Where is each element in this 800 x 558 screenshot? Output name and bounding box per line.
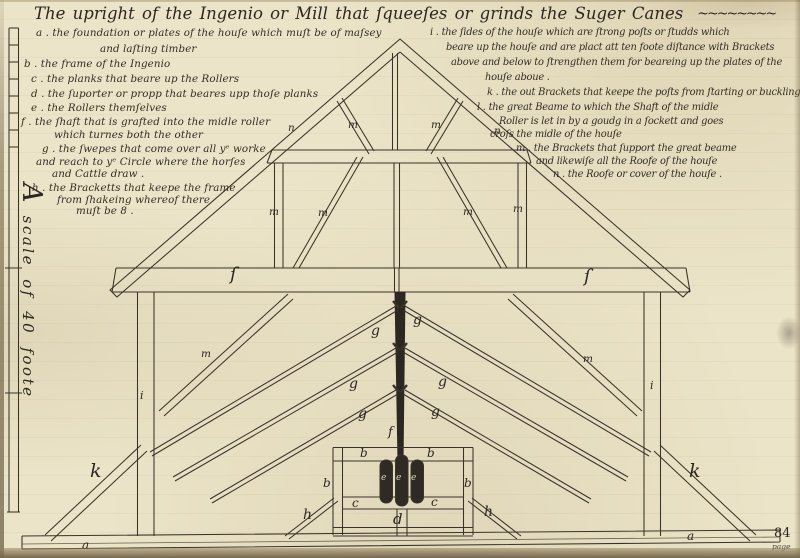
foundation-plates	[22, 530, 780, 549]
great-beam	[112, 268, 690, 292]
legend-line: and likewiſe all the Roofe of the houſe	[536, 156, 717, 167]
legend-line: beare up the houſe and are plact att ten…	[446, 42, 774, 53]
legend-line: k . the out Brackets that keepe the poſt…	[487, 87, 800, 98]
legend-line: and reach to yᵉ Circle where the horſes	[36, 156, 245, 168]
legend-line: above and below to ſtrengthen them for b…	[451, 57, 782, 68]
legend-line: Roller is let in by a goudg in a ſockett…	[499, 116, 723, 127]
diagram-letter-label: m	[348, 120, 358, 131]
manuscript-page: The upright of the Ingenio or Mill that …	[0, 0, 800, 558]
scale-caption: A scale of 40 foote	[16, 183, 47, 398]
diagram-letter-label: b	[360, 447, 368, 459]
diagram-letter-label: g	[349, 377, 358, 391]
diagram-letter-label: m	[269, 207, 279, 218]
diagram-letter-label: k	[689, 462, 701, 481]
diagram-letter-label: i	[140, 390, 144, 401]
diagram-letter-label: ſ	[584, 268, 591, 286]
legend-line: e . the Rollers themſelves	[31, 102, 167, 114]
diagram-letter-label: e	[396, 474, 401, 483]
diagram-letter-label: e	[411, 474, 416, 483]
diagram-letter-label: g	[413, 313, 422, 327]
diagram-letter-label: i	[650, 380, 654, 391]
legend-line: l . the great Beame to which the Shaft o…	[477, 102, 718, 113]
legend-line: n . the Roofe or cover of the houſe .	[553, 169, 722, 180]
diagram-letter-label: n	[494, 126, 501, 137]
diagram-letter-label: m	[513, 204, 523, 215]
legend-line: h . the Bracketts that keepe the frame	[32, 182, 236, 194]
legend-line: d . the ſuporter or propp that beares up…	[31, 88, 318, 100]
mill-shaft	[394, 163, 406, 462]
diagram-letter-label: n	[288, 123, 295, 134]
title-text: The upright of the Ingenio or Mill that …	[34, 4, 683, 23]
diagram-letter-label: m	[318, 208, 328, 219]
paper-right-edge	[794, 0, 800, 558]
legend-line: which turnes both the other	[54, 129, 203, 141]
legend-line: f . the ſhaft that is grafted into the m…	[21, 116, 270, 128]
legend-line: b . the frame of the Ingenio	[24, 58, 170, 70]
paper-left-edge	[0, 0, 4, 558]
legend-line: houſe aboue .	[485, 72, 550, 83]
diagram-letter-label: c	[352, 497, 359, 509]
legend-line: croſs the midle of the houſe	[490, 129, 622, 140]
diagram-letter-label: b	[323, 477, 331, 489]
diagram-letter-label: g	[431, 405, 440, 419]
page-number: 84	[774, 526, 791, 541]
diagram-letter-label: g	[358, 407, 367, 421]
rollers	[380, 455, 424, 506]
legend-line: and laſting timber	[100, 43, 196, 55]
legend-line: a . the foundation or plates of the houſ…	[36, 27, 382, 39]
paper-bottom-edge	[0, 548, 800, 558]
diagram-letter-label: ſ	[230, 266, 237, 284]
diagram-letter-label: m	[463, 207, 473, 218]
diagram-letter-label: f	[388, 426, 393, 439]
legend-line: muſt be 8 .	[76, 205, 134, 217]
diagram-letter-label: a	[687, 530, 694, 542]
diagram-letter-label: m	[583, 354, 593, 365]
diagram-letter-label: g	[371, 324, 380, 338]
diagram-letter-label: d	[393, 512, 403, 527]
legend-line: c . the planks that beare up the Rollers	[31, 73, 239, 85]
diagram-letter-label: k	[90, 462, 102, 481]
diagram-letter-label: e	[381, 474, 386, 483]
diagram-letter-label: h	[303, 508, 312, 522]
diagram-letter-label: b	[427, 447, 435, 459]
diagram-letter-label: c	[431, 496, 438, 508]
legend-line: g . the ſwepes that come over all yᵉ wor…	[42, 143, 266, 155]
page-title: The upright of the Ingenio or Mill that …	[34, 4, 775, 23]
legend-line: i . the ſides of the houſe which are ſtr…	[430, 27, 729, 38]
legend-line: m . the Brackets that ſupport the great …	[516, 143, 736, 154]
legend-line: and Cattle draw .	[52, 168, 144, 180]
diagram-letter-label: g	[438, 375, 447, 389]
diagram-letter-label: m	[431, 120, 441, 131]
diagram-letter-label: b	[464, 477, 472, 489]
diagram-letter-label: m	[201, 349, 211, 360]
diagram-letter-label: h	[484, 505, 493, 519]
title-flourish: ~~~~~~~~	[683, 6, 775, 22]
